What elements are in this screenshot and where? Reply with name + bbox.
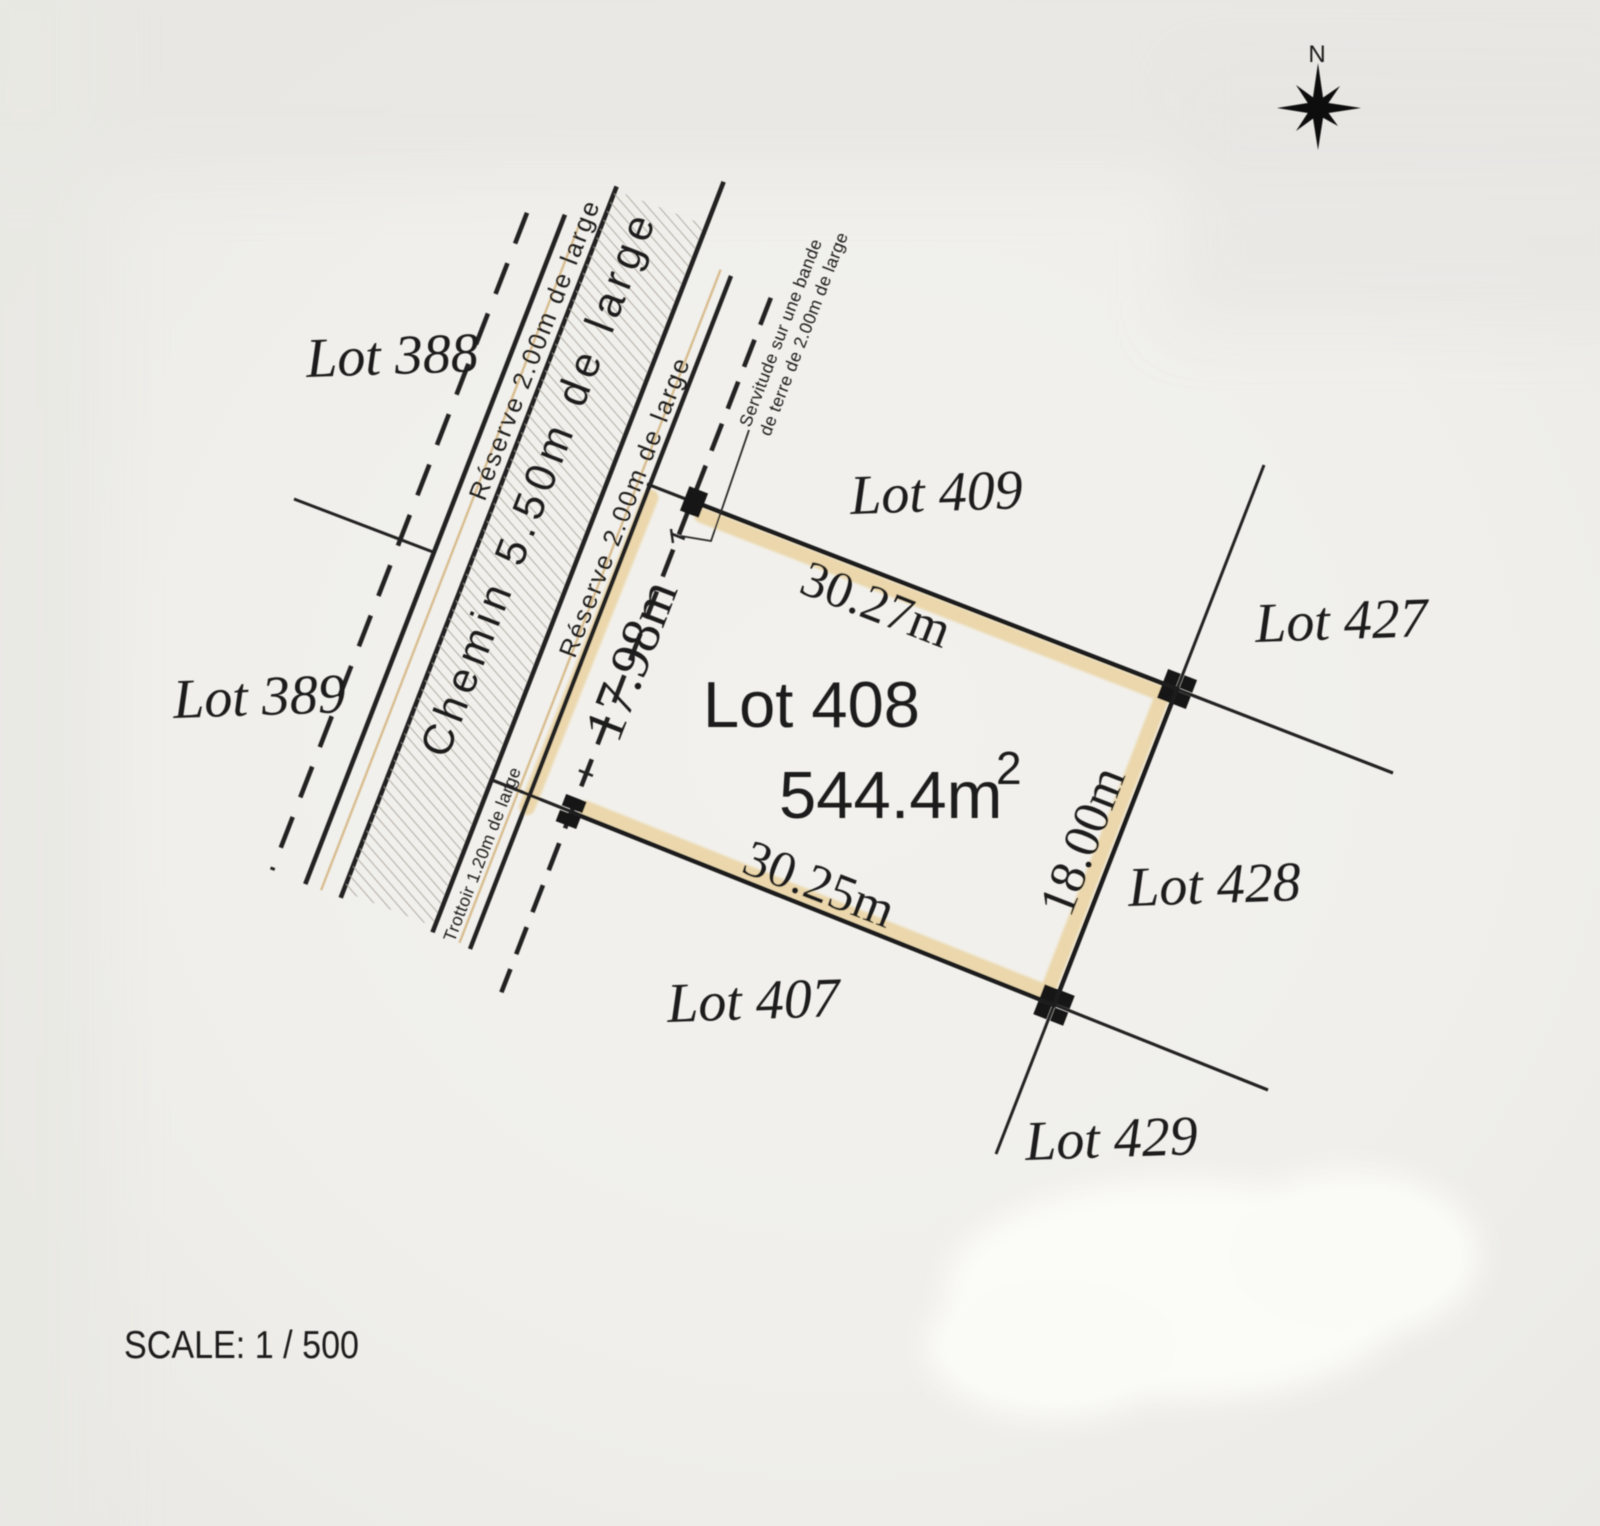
svg-text:Lot 408: Lot 408 xyxy=(703,668,920,741)
svg-text:N: N xyxy=(1308,41,1325,68)
svg-text:SCALE: 1 / 500: SCALE: 1 / 500 xyxy=(124,1324,359,1367)
svg-text:Lot 407: Lot 407 xyxy=(665,967,843,1035)
svg-text:Lot 429: Lot 429 xyxy=(1023,1105,1199,1173)
svg-text:Lot 389: Lot 389 xyxy=(171,663,347,731)
svg-text:Lot 409: Lot 409 xyxy=(848,459,1024,527)
svg-text:2: 2 xyxy=(996,742,1022,794)
svg-text:544.4m: 544.4m xyxy=(779,758,1002,833)
svg-text:Lot 428: Lot 428 xyxy=(1126,851,1302,919)
svg-text:Lot 388: Lot 388 xyxy=(304,322,480,390)
svg-text:Lot 427: Lot 427 xyxy=(1253,587,1431,655)
